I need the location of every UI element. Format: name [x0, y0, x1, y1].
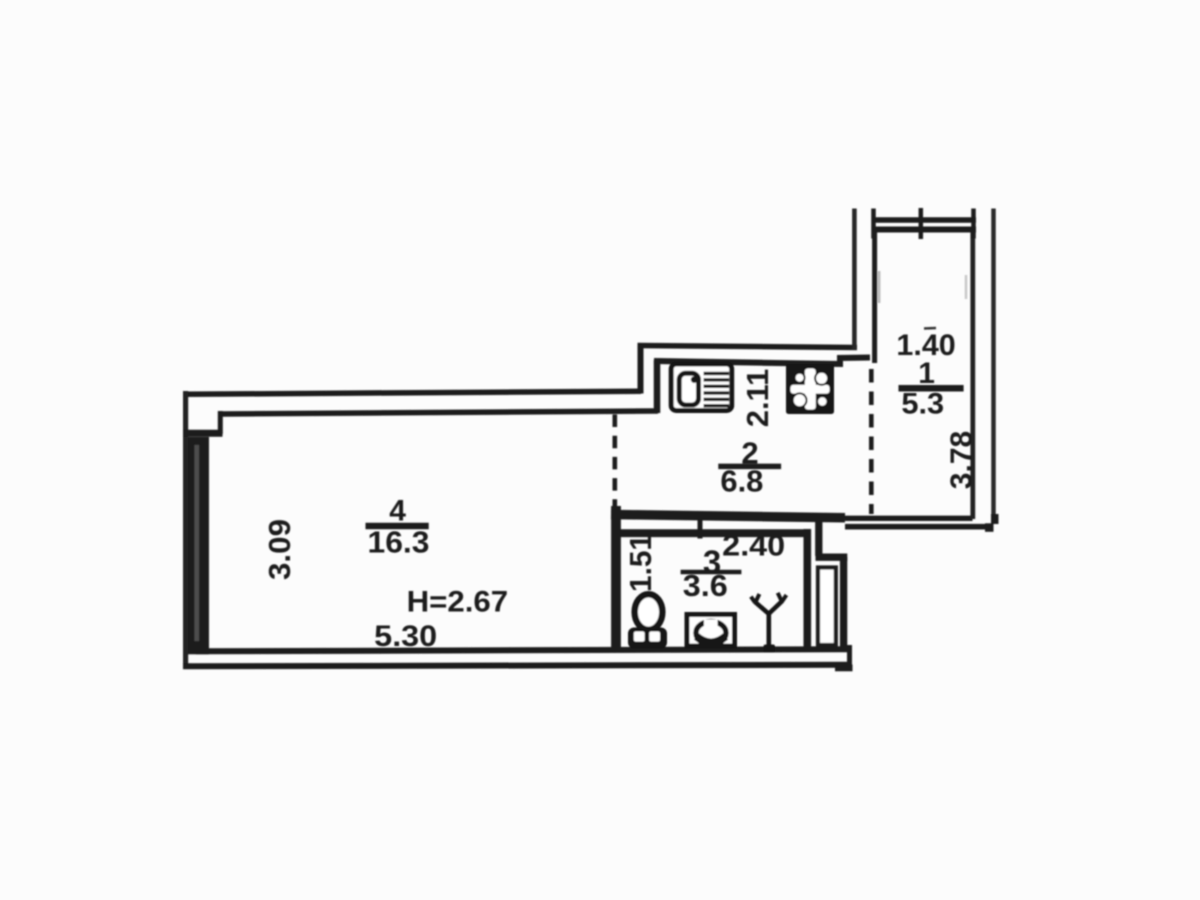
svg-text:6.8: 6.8	[720, 464, 763, 499]
svg-text:3.6: 3.6	[683, 568, 728, 603]
svg-text:1.51: 1.51	[623, 534, 658, 592]
svg-text:5.3: 5.3	[901, 388, 944, 421]
svg-text:3.78: 3.78	[944, 431, 979, 489]
svg-text:3.09: 3.09	[262, 519, 297, 580]
svg-text:4: 4	[389, 495, 406, 528]
svg-text:2.11: 2.11	[740, 369, 775, 428]
svg-text:5.30: 5.30	[374, 620, 437, 653]
svg-text:2.40: 2.40	[722, 530, 785, 563]
svg-text:H=2.67: H=2.67	[407, 586, 509, 619]
svg-text:16.3: 16.3	[368, 525, 430, 560]
